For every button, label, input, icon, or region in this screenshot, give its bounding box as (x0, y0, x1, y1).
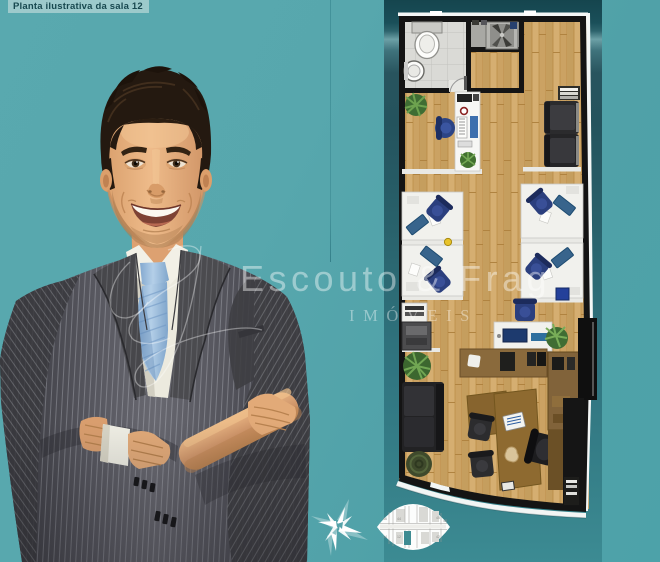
svg-text:12: 12 (397, 535, 401, 539)
svg-text:IMÓVEIS: IMÓVEIS (349, 306, 478, 325)
svg-text:45: 45 (436, 516, 440, 520)
svg-text:44: 44 (397, 517, 401, 521)
svg-text:48: 48 (443, 519, 447, 523)
svg-text:46: 46 (383, 517, 387, 521)
svg-text:42: 42 (436, 535, 440, 539)
svg-text:14: 14 (383, 535, 387, 539)
svg-text:Escouto & Frag: Escouto & Frag (240, 258, 551, 299)
